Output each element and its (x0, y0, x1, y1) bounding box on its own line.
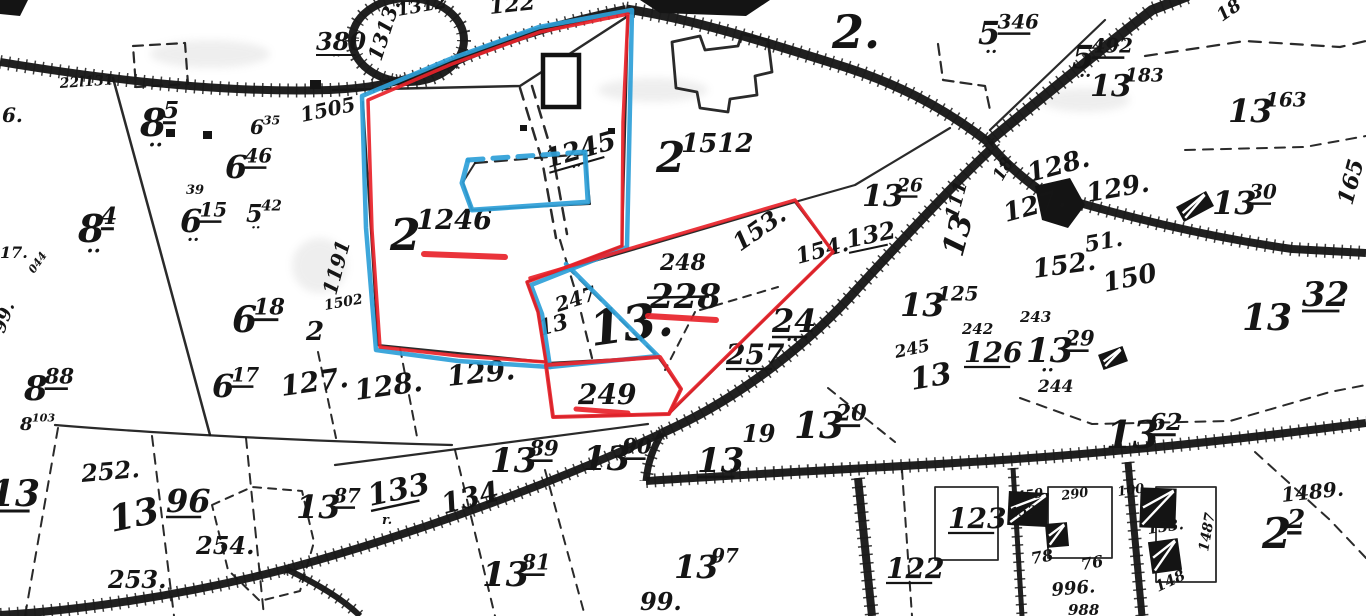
parcel-label: 1527 (1009, 503, 1046, 521)
parcel-number: 13 (0, 473, 40, 515)
building (203, 131, 212, 139)
parcel-number: 243 (1019, 308, 1051, 326)
parcel-number: 249 (577, 378, 636, 411)
parcel-label: 988 (1068, 601, 1100, 616)
parcel-label: 123 (948, 502, 1006, 535)
parcel-number: 253. (107, 565, 166, 594)
parcel-number: 380 (316, 27, 366, 56)
svg-text:··: ·· (332, 49, 341, 64)
parcel-label: 96 (166, 482, 211, 520)
parcel-label: 13 (1242, 297, 1292, 339)
parcel-label: 19 (742, 419, 776, 448)
parcel-label: 252. (79, 454, 141, 488)
parcel-number: 2 (305, 317, 324, 347)
parcel-label: 253. (107, 565, 166, 594)
parcel-number: 123 (948, 502, 1006, 535)
parcel-number: 1527 (1009, 503, 1046, 521)
parcel-label: 78 (1029, 545, 1054, 568)
parcel-number: 252. (79, 454, 141, 488)
parcel-label: 32 (1302, 275, 1349, 315)
parcel-label: 39 (186, 183, 204, 198)
parcel-number: 6. (2, 103, 23, 127)
parcel-number: 13 (697, 441, 744, 481)
parcel-number: 19 (742, 419, 776, 448)
building (166, 129, 175, 137)
svg-text:··: ·· (187, 229, 199, 250)
parcel-label: 243 (1019, 308, 1051, 326)
parcel-label: 126 (964, 336, 1022, 369)
parcel-label: 248 (659, 250, 706, 276)
parcel-number: 244 (1037, 377, 1074, 397)
parcel-label: 244 (1037, 377, 1074, 397)
svg-text:··: ·· (251, 221, 260, 236)
parcel-label: 17. (0, 243, 28, 262)
building-outline (543, 55, 579, 107)
parcel-label: 122 (886, 552, 944, 585)
svg-text:··: ·· (148, 132, 163, 157)
parcel-label: 2. (831, 5, 880, 59)
parcel-label: 254. (195, 531, 254, 560)
red-annotation-outline (424, 254, 505, 257)
parcel-number: 122 (886, 552, 944, 585)
svg-text:··: ·· (744, 362, 755, 380)
parcel-label: 76 (1079, 551, 1104, 574)
svg-text:··: ·· (86, 238, 101, 263)
parcel-label: 13 (697, 441, 744, 481)
parcel-number: 2. (831, 5, 880, 59)
parcel-number: 248 (659, 250, 706, 276)
parcel-label: 13 (0, 473, 40, 515)
building (310, 80, 321, 89)
parcel-number: 78 (1029, 545, 1054, 568)
svg-text:··: ·· (786, 329, 798, 350)
parcel-number: 96 (166, 482, 211, 520)
cadastral-map[interactable]: 1313.1312122380··22l1316.85··64663539615… (0, 0, 1366, 616)
building (1045, 522, 1069, 548)
parcel-label: 996. (1051, 576, 1097, 601)
parcel-number: 996. (1051, 576, 1097, 601)
parcel-number: 13 (907, 356, 954, 398)
building (520, 125, 527, 131)
parcel-number: 254. (195, 531, 254, 560)
parcel-label: 249 (577, 378, 636, 411)
parcel-label: 228 (647, 277, 721, 317)
parcel-label: r. (382, 513, 392, 528)
parcel-label: 99. (640, 587, 682, 616)
red-annotation-outline (648, 316, 716, 320)
parcel-number: 126 (964, 336, 1022, 369)
parcel-number: 13 (1242, 297, 1292, 339)
svg-text:··: ·· (985, 41, 997, 62)
map-canvas: 1313.1312122380··22l1316.85··64663539615… (0, 0, 1366, 616)
parcel-number: 32 (1302, 275, 1349, 315)
parcel-number: 76 (1079, 551, 1104, 574)
parcel-label: 2 (305, 317, 324, 347)
parcel-number: 988 (1068, 601, 1100, 616)
parcel-label: 13 (907, 356, 954, 398)
parcel-label: 6. (2, 103, 23, 127)
parcel-number: 99. (640, 587, 682, 616)
parcel-number: r. (382, 513, 392, 528)
parcel-number: 17. (0, 243, 28, 262)
parcel-number: 39 (186, 183, 204, 198)
